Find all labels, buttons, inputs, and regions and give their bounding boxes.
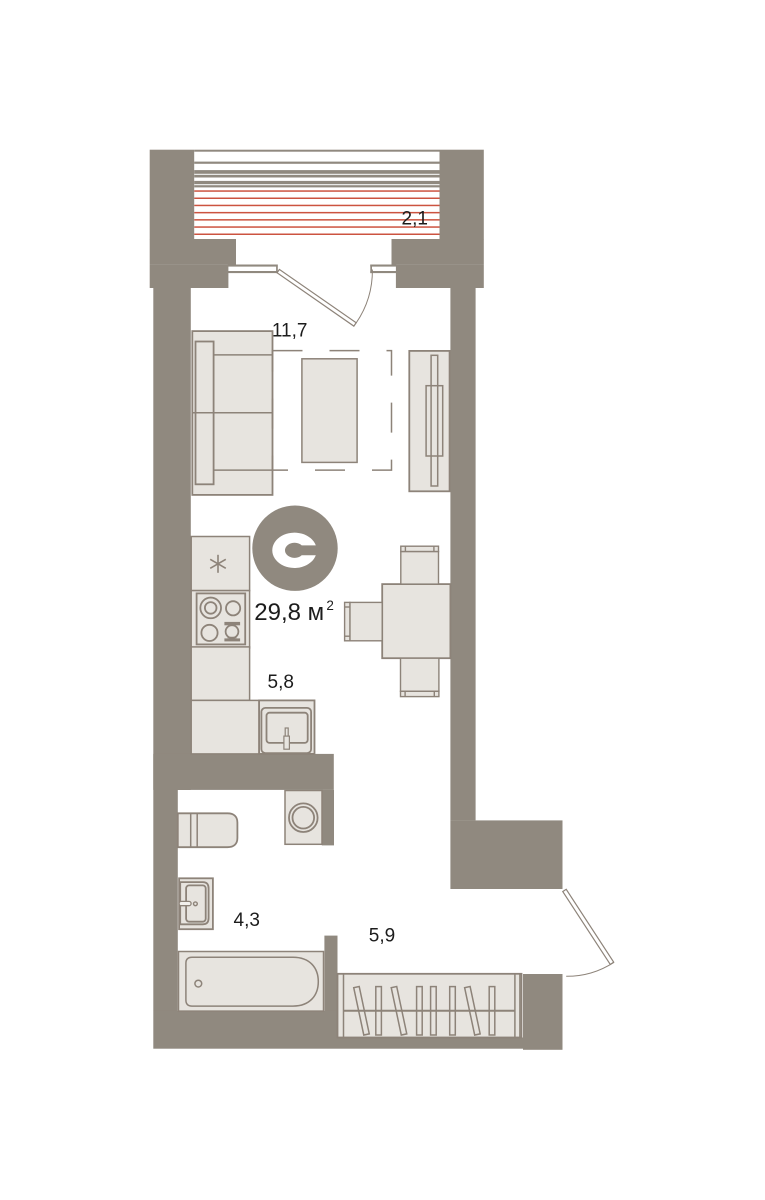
- svg-text:5,9: 5,9: [369, 925, 395, 946]
- svg-text:29,8 м: 29,8 м: [254, 599, 324, 626]
- svg-text:11,7: 11,7: [272, 321, 308, 342]
- svg-text:4,3: 4,3: [234, 910, 260, 931]
- svg-text:2,1: 2,1: [402, 209, 428, 230]
- svg-text:5,8: 5,8: [268, 672, 294, 693]
- svg-text:2: 2: [326, 598, 334, 613]
